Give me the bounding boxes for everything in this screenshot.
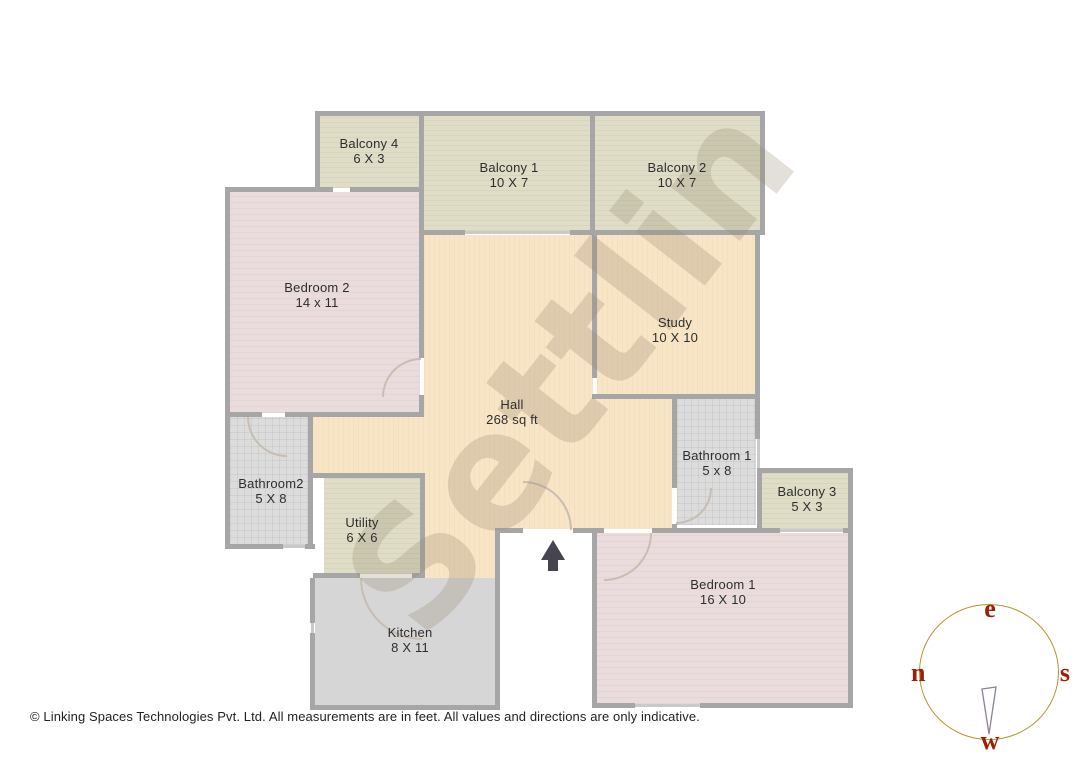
wall-segment <box>762 468 853 473</box>
room-name: Bathroom2 <box>238 476 303 491</box>
window-segment <box>780 529 843 532</box>
wall-segment <box>313 573 360 578</box>
compass-north-label: n <box>911 660 925 686</box>
wall-segment <box>315 111 320 192</box>
wall-segment <box>419 111 424 192</box>
room-dimensions: 10 X 7 <box>480 175 539 190</box>
wall-segment <box>762 528 780 533</box>
entrance-arrow-icon <box>539 538 567 572</box>
room-dimensions: 5 x 8 <box>682 463 751 478</box>
room-label-bedroom1: Bedroom 116 X 10 <box>690 577 755 607</box>
footer-disclaimer: © Linking Spaces Technologies Pvt. Ltd. … <box>30 709 700 724</box>
room-dimensions: 16 X 10 <box>690 592 755 607</box>
room-label-utility: Utility6 X 6 <box>345 515 378 545</box>
room-dimensions: 8 X 11 <box>388 640 433 655</box>
room-label-bedroom2: Bedroom 214 x 11 <box>284 280 349 310</box>
room-label-hall: Hall268 sq ft <box>486 397 538 427</box>
wall-segment <box>315 111 765 116</box>
room-name: Balcony 1 <box>480 160 539 175</box>
wall-segment <box>592 528 597 708</box>
room-dimensions: 5 X 3 <box>778 499 837 514</box>
wall-segment <box>419 192 424 358</box>
wall-segment <box>420 473 425 578</box>
wall-segment <box>350 187 424 192</box>
room-name: Balcony 4 <box>340 136 399 151</box>
wall-segment <box>590 111 595 235</box>
floorplan-canvas: Balcony 46 X 3Balcony 110 X 7Balcony 210… <box>0 0 1080 764</box>
room-name: Kitchen <box>388 625 433 640</box>
room-label-bathroom1: Bathroom 15 x 8 <box>682 448 751 478</box>
room-name: Balcony 3 <box>778 484 837 499</box>
compass-east-label: e <box>984 596 996 622</box>
wall-segment <box>285 412 424 417</box>
window-segment <box>635 704 700 707</box>
wall-segment <box>310 578 315 623</box>
wall-segment <box>592 235 597 378</box>
window-segment <box>311 623 314 633</box>
wall-segment <box>495 528 500 710</box>
wall-segment <box>672 524 677 533</box>
room-label-balcony1: Balcony 110 X 7 <box>480 160 539 190</box>
room-dimensions: 6 X 6 <box>345 530 378 545</box>
room-label-study: Study10 X 10 <box>652 315 698 345</box>
room-name: Bedroom 2 <box>284 280 349 295</box>
room-label-balcony2: Balcony 210 X 7 <box>648 160 707 190</box>
wall-segment <box>313 473 425 478</box>
room-hall <box>424 235 593 397</box>
room-name: Bathroom 1 <box>682 448 751 463</box>
wall-segment <box>755 235 760 394</box>
room-dimensions: 6 X 3 <box>340 151 399 166</box>
room-dimensions: 10 X 7 <box>648 175 707 190</box>
room-name: Utility <box>345 515 378 530</box>
wall-segment <box>652 528 762 533</box>
compass-west-label: w <box>981 728 1000 754</box>
wall-segment <box>755 394 760 439</box>
wall-segment <box>757 468 762 528</box>
wall-segment <box>419 395 424 417</box>
wall-segment <box>672 397 677 488</box>
wall-segment <box>590 230 765 235</box>
room-label-balcony4: Balcony 46 X 3 <box>340 136 399 166</box>
room-dimensions: 5 X 8 <box>238 491 303 506</box>
room-name: Hall <box>486 397 538 412</box>
room-hall <box>424 474 496 579</box>
wall-segment <box>225 187 230 549</box>
room-hall <box>313 414 425 475</box>
wall-segment <box>225 544 283 549</box>
wall-segment <box>760 111 765 235</box>
wall-segment <box>308 412 313 549</box>
room-dimensions: 10 X 10 <box>652 330 698 345</box>
compass-south-label: s <box>1060 660 1070 686</box>
room-name: Bedroom 1 <box>690 577 755 592</box>
window-segment <box>283 545 305 548</box>
wall-segment <box>310 633 315 710</box>
room-label-balcony3: Balcony 35 X 3 <box>778 484 837 514</box>
room-label-bathroom2: Bathroom25 X 8 <box>238 476 303 506</box>
wall-segment <box>419 230 465 235</box>
window-segment <box>757 439 760 468</box>
wall-segment <box>592 703 635 708</box>
window-segment <box>465 231 570 234</box>
room-name: Balcony 2 <box>648 160 707 175</box>
room-name: Study <box>652 315 698 330</box>
room-label-kitchen: Kitchen8 X 11 <box>388 625 433 655</box>
wall-segment <box>700 703 853 708</box>
room-dimensions: 14 x 11 <box>284 295 349 310</box>
room-dimensions: 268 sq ft <box>486 412 538 427</box>
wall-segment <box>848 468 853 708</box>
compass: e n s w <box>919 604 1061 742</box>
